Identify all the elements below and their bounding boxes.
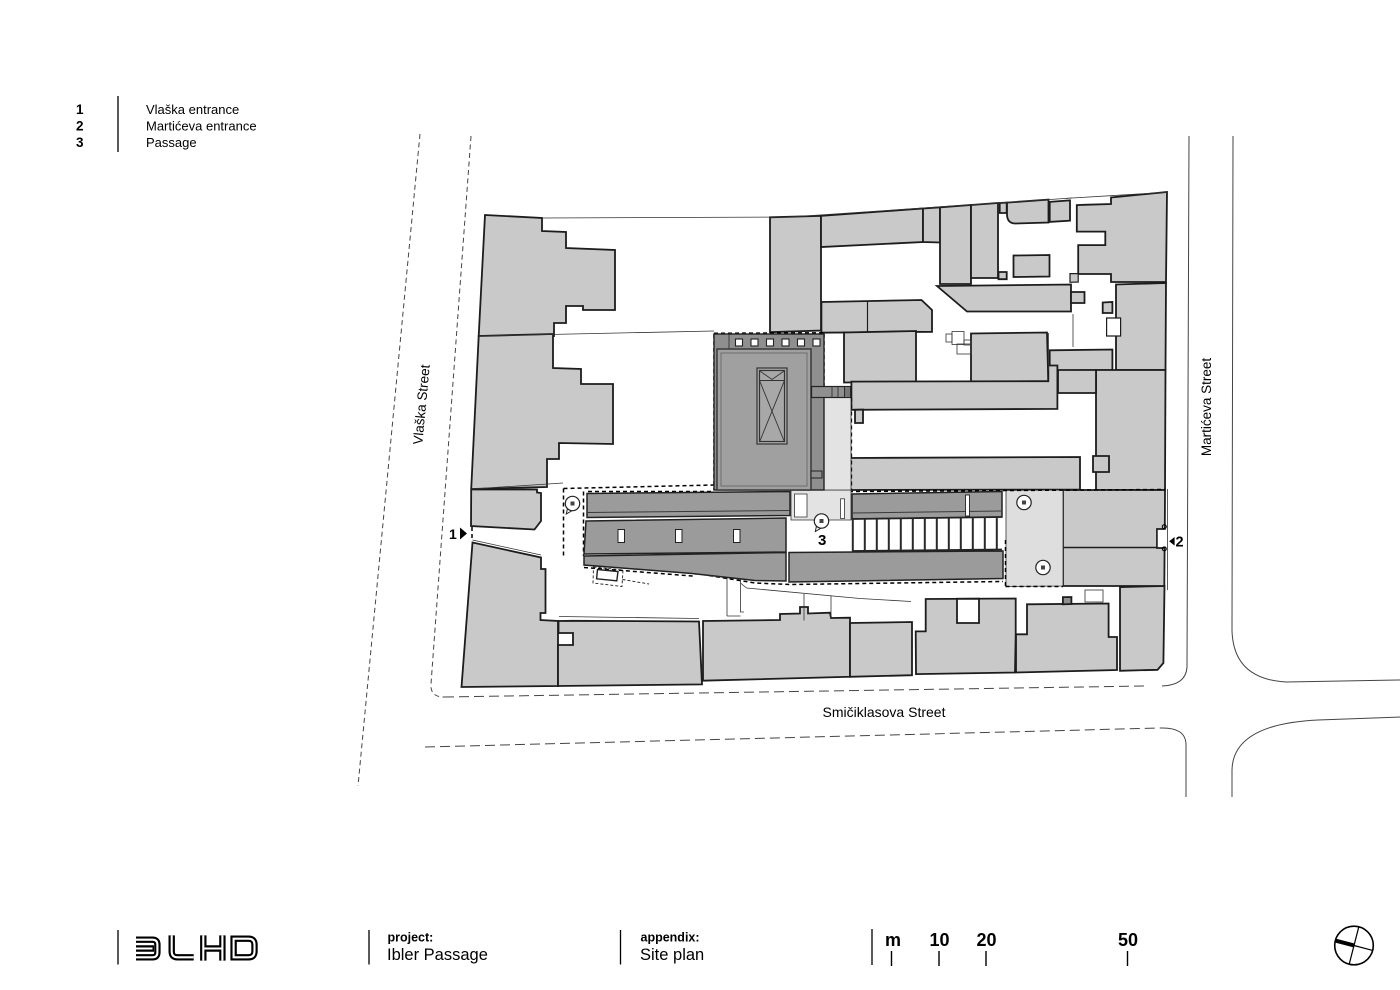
svg-text:Vlaška entrance: Vlaška entrance [146, 102, 239, 117]
svg-text:Martićeva Street: Martićeva Street [1199, 358, 1214, 457]
svg-text:20: 20 [976, 930, 996, 950]
svg-text:50: 50 [1118, 930, 1138, 950]
svg-text:Martićeva entrance: Martićeva entrance [146, 119, 257, 134]
svg-text:Ibler Passage: Ibler Passage [387, 946, 488, 964]
svg-text:Site plan: Site plan [640, 946, 704, 964]
svg-text:10: 10 [929, 930, 949, 950]
svg-text:Smičiklasova Street: Smičiklasova Street [823, 704, 946, 720]
svg-text:2: 2 [76, 119, 84, 134]
svg-text:3: 3 [818, 532, 826, 549]
svg-text:Passage: Passage [146, 135, 197, 150]
svg-text:appendix:: appendix: [641, 931, 700, 945]
svg-text:project:: project: [388, 931, 434, 945]
svg-text:1: 1 [449, 526, 457, 542]
svg-text:1: 1 [76, 102, 84, 117]
svg-text:2: 2 [1176, 535, 1184, 551]
svg-text:3: 3 [76, 135, 84, 150]
svg-text:m: m [885, 930, 901, 950]
